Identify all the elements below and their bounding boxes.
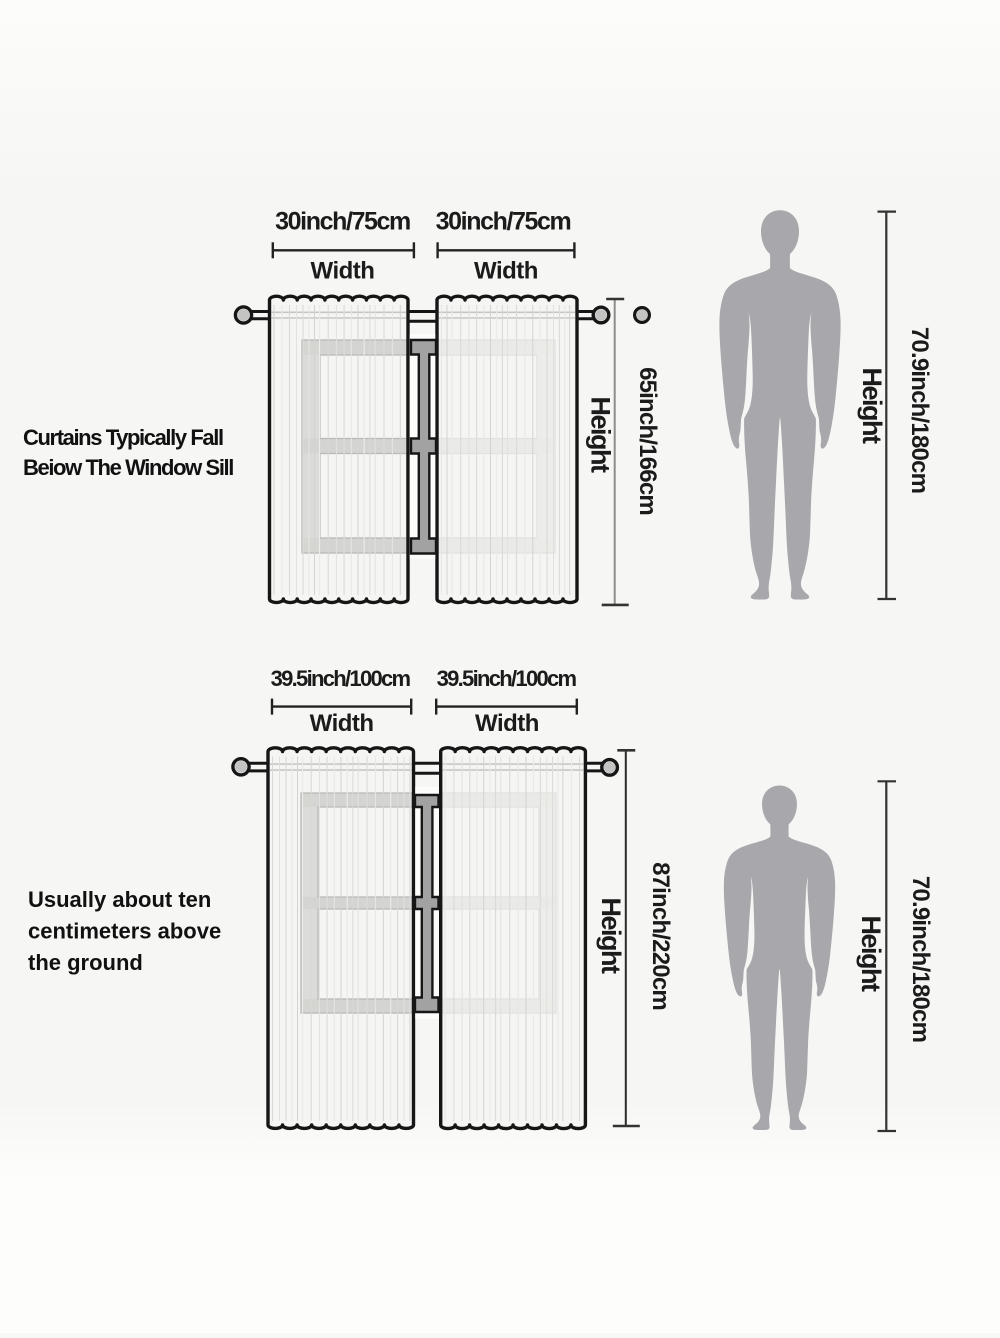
svg-text:Height: Height — [596, 898, 626, 975]
svg-text:30inch/75cm: 30inch/75cm — [436, 208, 571, 236]
svg-text:30inch/75cm: 30inch/75cm — [275, 208, 410, 236]
svg-text:87inch/220cm: 87inch/220cm — [647, 862, 674, 1010]
svg-text:centimeters above: centimeters above — [28, 919, 221, 944]
svg-text:Height: Height — [856, 916, 886, 993]
svg-text:Height: Height — [857, 368, 887, 445]
svg-text:Height: Height — [586, 397, 616, 474]
svg-text:65inch/166cm: 65inch/166cm — [634, 367, 661, 515]
svg-text:70.9inch/180cm: 70.9inch/180cm — [906, 327, 933, 493]
svg-text:Width: Width — [310, 710, 374, 737]
svg-text:Usually about ten: Usually about ten — [28, 887, 211, 912]
svg-text:Width: Width — [474, 257, 538, 284]
svg-text:Curtains Typically Fall: Curtains Typically Fall — [23, 425, 223, 450]
svg-text:Width: Width — [475, 710, 539, 737]
svg-text:39.5inch/100cm: 39.5inch/100cm — [437, 666, 577, 691]
svg-text:70.9inch/180cm: 70.9inch/180cm — [907, 876, 934, 1042]
svg-text:Width: Width — [311, 257, 375, 284]
svg-text:Beiow The Window Sill: Beiow The Window Sill — [23, 455, 233, 480]
svg-text:39.5inch/100cm: 39.5inch/100cm — [271, 666, 411, 691]
svg-text:the ground: the ground — [28, 950, 143, 975]
